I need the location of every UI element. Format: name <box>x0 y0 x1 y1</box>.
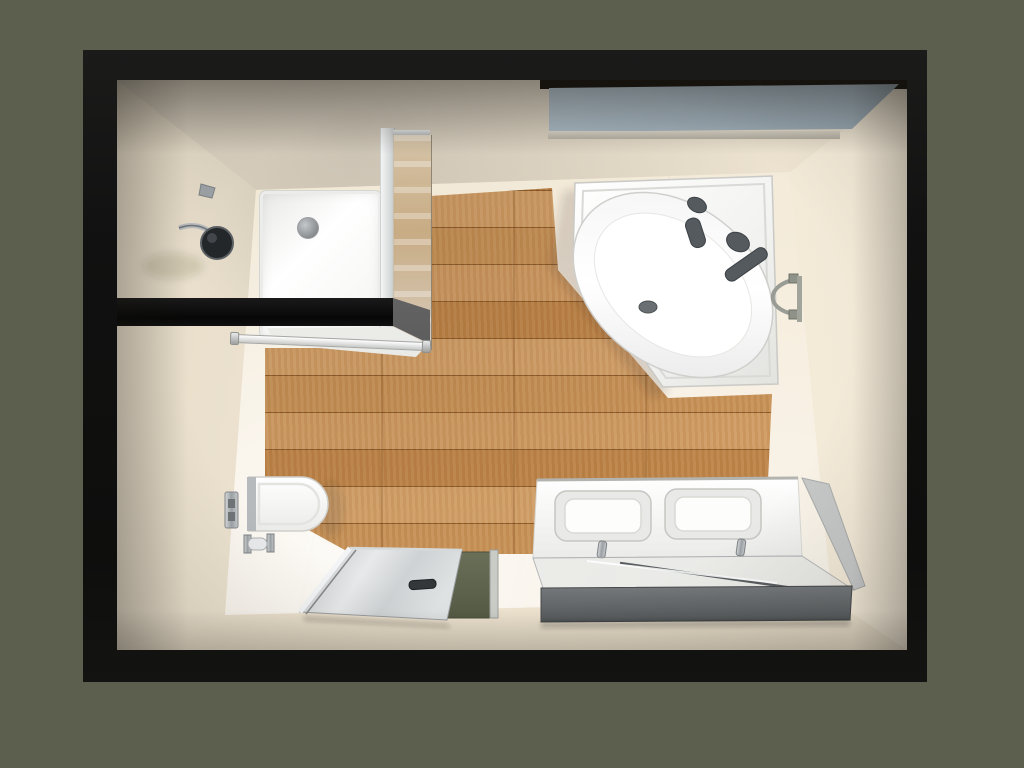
towel-ring-bracket <box>789 274 798 283</box>
faucet-right-icon <box>736 539 746 557</box>
toilet-back-edge <box>247 477 256 531</box>
shower-head <box>143 184 233 279</box>
fixtures-layer <box>117 80 907 650</box>
shower-screen-and-mat <box>300 548 498 628</box>
faucet-left-icon <box>597 541 607 559</box>
tub-drain-icon <box>639 301 657 313</box>
toilet-paper-holder <box>244 534 274 553</box>
vanity-back-rail <box>537 478 798 480</box>
double-vanity <box>533 478 865 628</box>
shower-head-shadow <box>143 253 203 279</box>
paper-roll-icon <box>248 538 267 550</box>
flush-button-icon <box>228 512 235 521</box>
bathroom-render: Photorealistic 3D render of a bathroom, … <box>0 0 1024 768</box>
shower-head-hub <box>207 233 217 243</box>
corner-bathtub <box>537 154 809 416</box>
flush-button-icon <box>228 499 235 508</box>
flush-plate <box>225 492 238 528</box>
screen-handle-icon <box>409 579 437 590</box>
mat-edge-rail <box>490 550 498 618</box>
vanity-front-band <box>541 586 852 622</box>
shower-valve-icon <box>199 184 215 198</box>
towel-ring <box>773 274 802 322</box>
bathroom-room <box>117 80 907 650</box>
shower-head-face <box>201 227 233 259</box>
washbasin-right-inner <box>675 497 751 531</box>
towel-ring-post <box>797 276 802 322</box>
wall-hung-toilet <box>225 477 343 553</box>
towel-ring-bracket <box>789 310 798 319</box>
washbasin-left-inner <box>565 499 641 533</box>
